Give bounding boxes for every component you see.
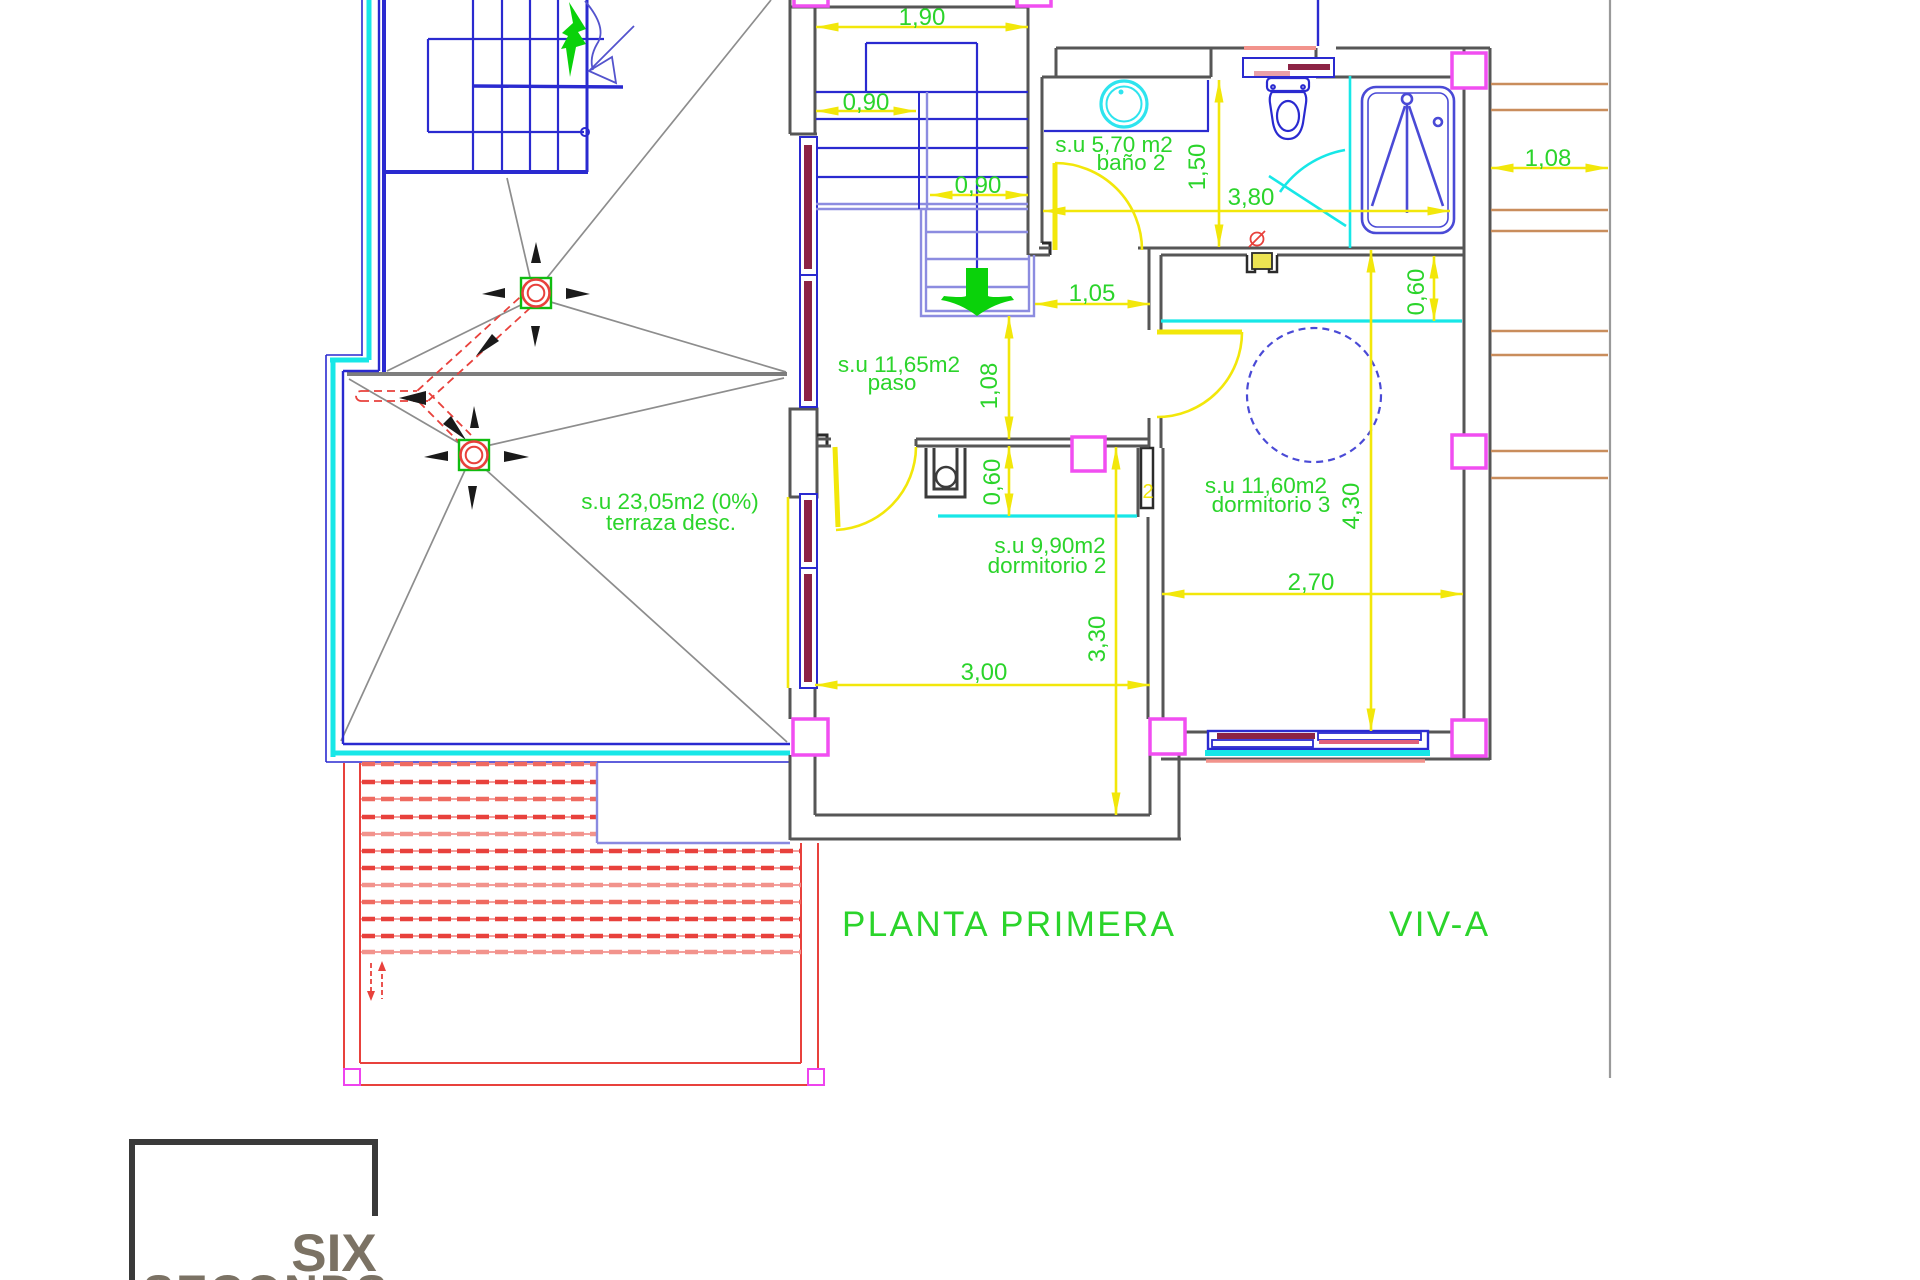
svg-text:1,50: 1,50 [1184, 144, 1211, 191]
svg-text:dormitorio 3: dormitorio 3 [1212, 492, 1331, 517]
svg-text:0,90: 0,90 [843, 89, 890, 116]
svg-text:terraza desc.: terraza desc. [606, 510, 736, 535]
svg-text:0,60: 0,60 [979, 459, 1006, 506]
svg-text:2,70: 2,70 [1288, 569, 1335, 596]
svg-text:baño 2: baño 2 [1097, 150, 1166, 175]
svg-text:4,30: 4,30 [1338, 483, 1365, 530]
svg-text:SECONDS: SECONDS [143, 1265, 389, 1280]
svg-text:1,08: 1,08 [1525, 145, 1572, 172]
svg-text:VIV-A: VIV-A [1389, 905, 1490, 944]
svg-text:1,90: 1,90 [899, 4, 946, 31]
svg-text:dormitorio 2: dormitorio 2 [988, 553, 1107, 578]
svg-text:paso: paso [868, 370, 917, 395]
svg-text:3,00: 3,00 [961, 659, 1008, 686]
svg-text:1,05: 1,05 [1069, 280, 1116, 307]
svg-text:2: 2 [1142, 481, 1153, 503]
svg-text:3,80: 3,80 [1228, 184, 1275, 211]
svg-text:0,60: 0,60 [1403, 269, 1430, 316]
svg-text:1,08: 1,08 [976, 363, 1003, 410]
svg-text:3,30: 3,30 [1084, 616, 1111, 663]
svg-text:0,90: 0,90 [955, 172, 1002, 199]
svg-text:PLANTA PRIMERA: PLANTA PRIMERA [842, 905, 1176, 944]
